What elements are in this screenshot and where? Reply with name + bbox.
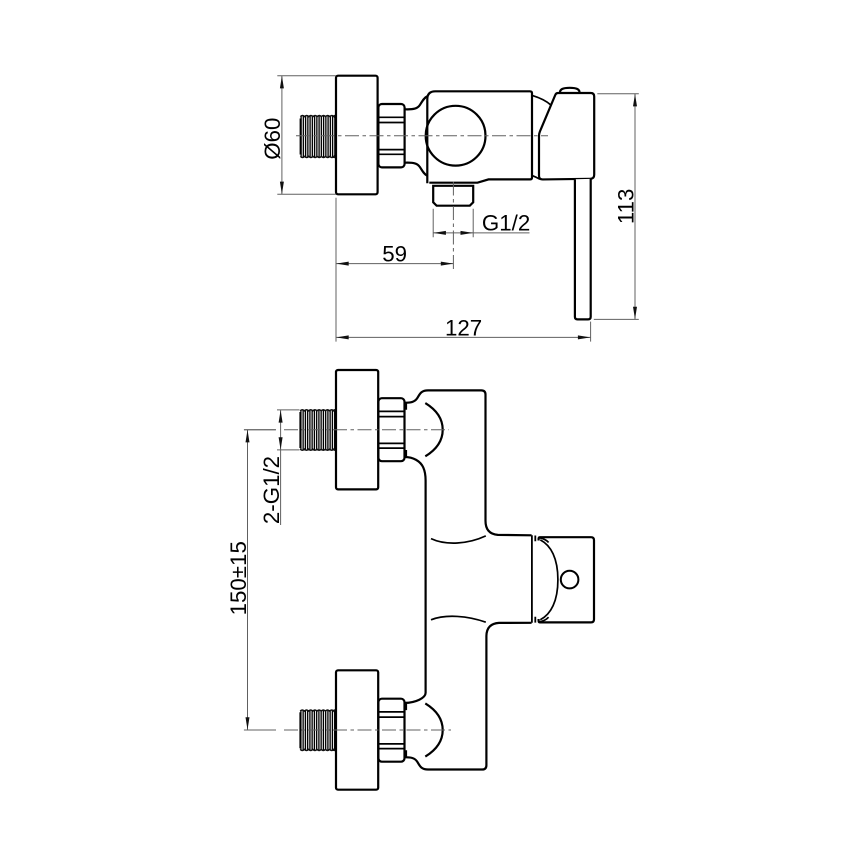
svg-text:Ø60: Ø60 bbox=[260, 118, 285, 160]
svg-text:G1/2: G1/2 bbox=[482, 211, 530, 236]
svg-text:150±15: 150±15 bbox=[226, 541, 251, 615]
svg-text:127: 127 bbox=[445, 316, 482, 341]
svg-text:113: 113 bbox=[613, 189, 638, 225]
svg-text:2-G1/2: 2-G1/2 bbox=[259, 456, 284, 524]
svg-text:59: 59 bbox=[382, 242, 407, 267]
